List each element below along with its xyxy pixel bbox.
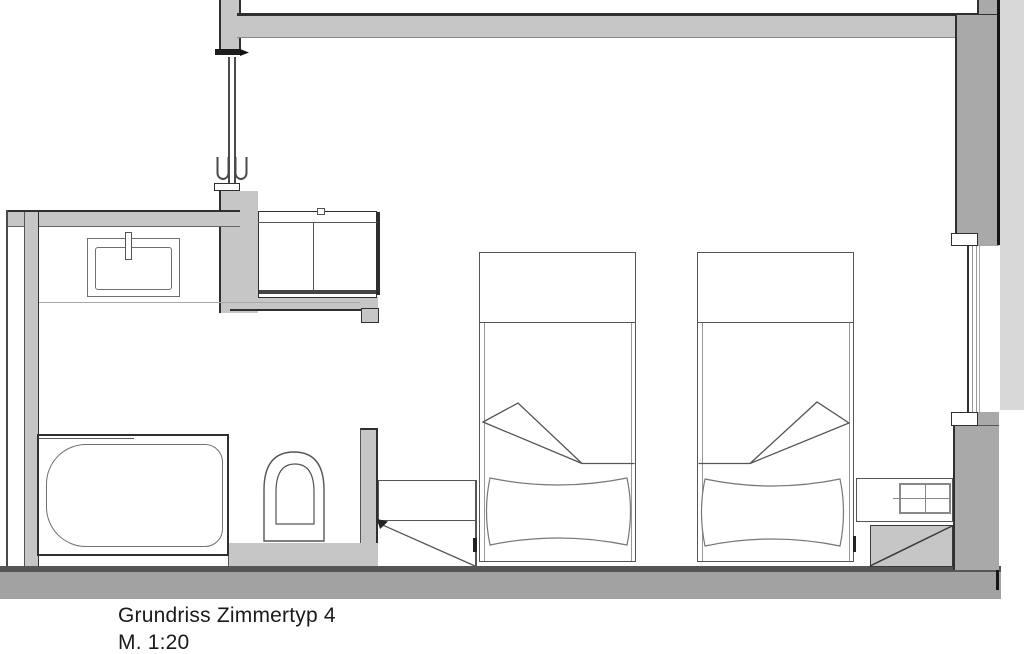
wall-step-block (361, 308, 379, 323)
bed-2-foot-line (697, 322, 854, 323)
bench-diagonal (378, 523, 475, 566)
floor-plan: Grundriss Zimmertyp 4 M. 1:20 (0, 0, 1024, 654)
window-glazing-line (967, 246, 969, 412)
entry-cabinet-base (259, 290, 376, 294)
wall-bathroom-east-upper (230, 297, 378, 311)
bed-2 (697, 252, 854, 562)
wall-bathroom-north (8, 210, 240, 227)
window-glazing-line (976, 246, 977, 412)
wall-south-band (0, 566, 1001, 599)
luggage-bench (378, 480, 476, 521)
luggage-rack (870, 525, 953, 567)
entry-cabinet-top-line (258, 222, 377, 223)
bathtub-rim-line (39, 438, 134, 439)
bathtub-basin (46, 444, 223, 547)
bed-1-foot-line (479, 322, 636, 323)
toilet-bowl (276, 464, 314, 524)
wall-east-step-top (977, 233, 999, 246)
window-glazing-line (972, 246, 973, 412)
window-inner-edge (979, 246, 980, 412)
bed-1-mattress-edge (484, 323, 485, 561)
rack-tick (853, 536, 856, 552)
wall-stub-cap (215, 49, 240, 55)
bench-tick (473, 538, 477, 552)
partition-wall-line (228, 57, 230, 183)
wall-east-lower (953, 425, 999, 570)
entry-door-threshold (214, 183, 240, 191)
wall-face-line (377, 212, 380, 295)
wall-east-stub (977, 0, 999, 14)
wall-west-outer-line (6, 210, 8, 570)
wall-east-step-bottom (977, 412, 999, 426)
bed-2-mattress-edge (702, 323, 703, 561)
wall-east-upper (955, 13, 999, 233)
window-frame-bottom (951, 412, 978, 426)
wall-bathroom-south (228, 543, 378, 568)
entry-door-hook-icon (236, 157, 247, 179)
faucet-icon (125, 232, 132, 260)
bed-1 (479, 252, 636, 562)
vanity-counter-edge (39, 302, 360, 303)
nightstand-tray-line (925, 483, 926, 514)
entry-door-hook-icon (218, 157, 229, 179)
entry-cabinet-divider (313, 222, 314, 292)
nightstand-tray-line (893, 498, 951, 499)
bed-1-mattress-edge (631, 323, 632, 561)
entry-cabinet-handle (317, 208, 325, 215)
entry-cabinet (258, 211, 377, 298)
exterior-band (1000, 0, 1024, 410)
toilet (264, 452, 324, 541)
luggage-bench-edge (475, 480, 477, 567)
north-arrow-icon (240, 49, 249, 56)
window-frame-top (951, 233, 978, 246)
title-block: Grundriss Zimmertyp 4 M. 1:20 (118, 603, 336, 654)
partition-wall-line (234, 57, 236, 183)
plan-title: Grundriss Zimmertyp 4 (118, 603, 336, 630)
plan-scale: M. 1:20 (118, 630, 336, 654)
washbasin-bowl (95, 247, 172, 290)
wall-north (237, 13, 956, 38)
bed-2-mattress-edge (849, 323, 850, 561)
